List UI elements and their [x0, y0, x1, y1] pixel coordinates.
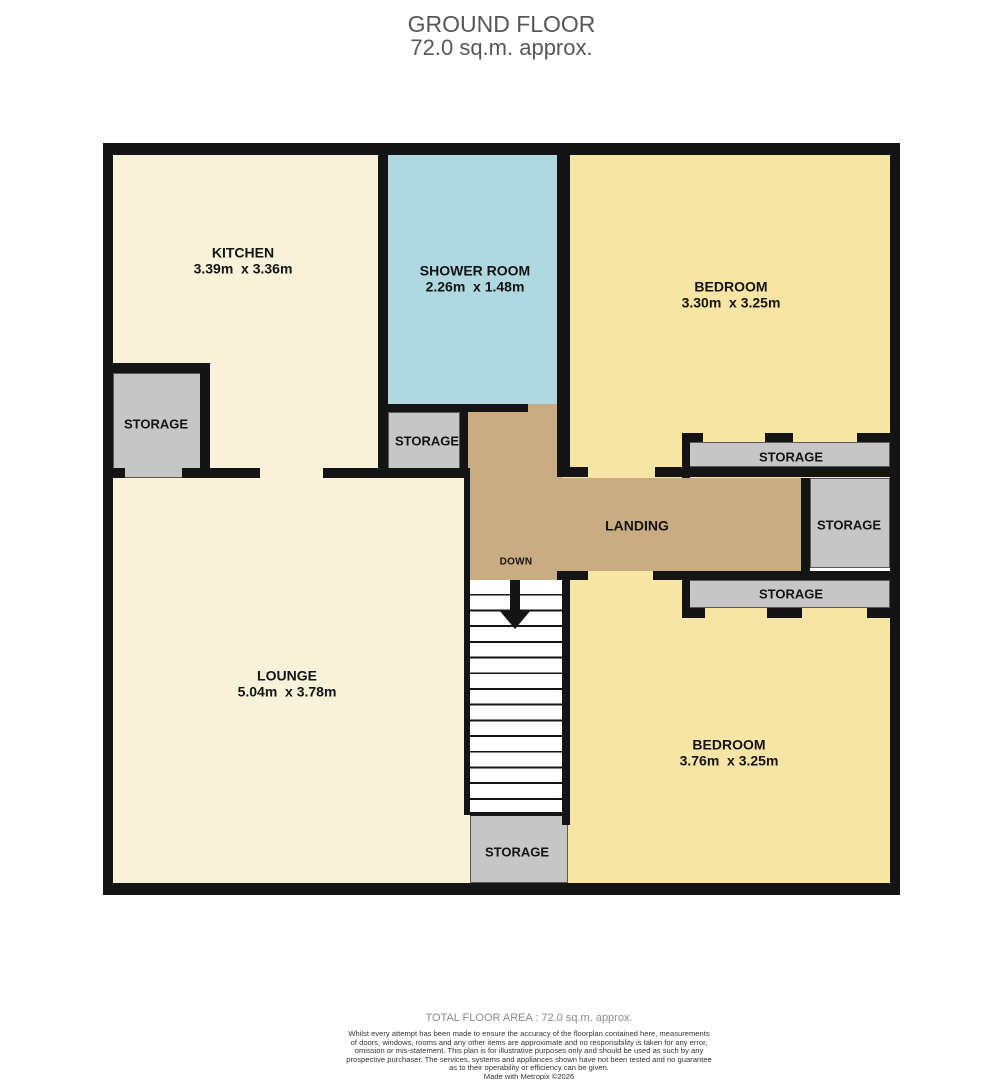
wall: [682, 433, 703, 442]
lounge-dims: 5.04m x 3.78m: [238, 684, 337, 700]
wall: [323, 468, 470, 478]
wall: [103, 143, 113, 895]
down-arrow-head-icon: [499, 610, 531, 629]
lounge-label: LOUNGE 5.04m x 3.78m: [238, 669, 337, 700]
bedroom-top-dims: 3.30m x 3.25m: [682, 295, 781, 311]
wall: [557, 143, 570, 477]
wall: [103, 468, 125, 478]
wall: [182, 468, 260, 478]
kitchen-label: KITCHEN 3.39m x 3.36m: [194, 246, 293, 277]
wall: [200, 363, 210, 478]
wall: [460, 412, 468, 478]
metropix-credit: Made with Metropix ©2026: [28, 1073, 1003, 1080]
kitchen-dims: 3.39m x 3.36m: [194, 261, 293, 277]
bedroom-bottom-dims: 3.76m x 3.25m: [680, 753, 779, 769]
wall: [378, 143, 388, 478]
wall: [557, 571, 588, 580]
wall: [857, 433, 890, 442]
footer: TOTAL FLOOR AREA : 72.0 sq.m. approx. Wh…: [0, 1012, 1003, 1080]
wall: [557, 467, 588, 477]
wall: [767, 608, 802, 618]
storage-bedroom-bottom-label: STORAGE: [759, 587, 823, 602]
wall: [103, 883, 900, 895]
floorplan: KITCHEN 3.39m x 3.36m SHOWER ROOM 2.26m …: [103, 143, 900, 895]
total-floor-area: TOTAL FLOOR AREA : 72.0 sq.m. approx.: [28, 1012, 1003, 1025]
wall: [562, 571, 570, 823]
disclaimer: Whilst every attempt has been made to en…: [28, 1030, 1003, 1073]
down-arrow-icon: [510, 580, 520, 612]
storage-kitchen-label: STORAGE: [124, 417, 188, 432]
wall: [801, 478, 810, 571]
shower-room-name: SHOWER ROOM: [420, 264, 530, 280]
shower-room-label: SHOWER ROOM 2.26m x 1.48m: [420, 264, 530, 295]
storage-under-stairs-label: STORAGE: [485, 845, 549, 860]
page-title: GROUND FLOOR 72.0 sq.m. approx.: [0, 12, 1003, 59]
wall: [655, 467, 890, 477]
shower-room-dims: 2.26m x 1.48m: [420, 279, 530, 295]
wall: [464, 478, 470, 815]
wall: [682, 608, 705, 618]
bedroom-bottom-name: BEDROOM: [680, 738, 779, 754]
stairs-down-label: DOWN: [500, 557, 533, 568]
floorplan-page: GROUND FLOOR 72.0 sq.m. approx.: [0, 0, 1003, 1080]
room-bedroom-bottom: [562, 571, 890, 883]
bedroom-top-label: BEDROOM 3.30m x 3.25m: [682, 280, 781, 311]
wall: [562, 815, 570, 825]
landing-label: LANDING: [605, 518, 669, 534]
room-bedroom-top: [560, 155, 890, 478]
bedroom-bottom-label: BEDROOM 3.76m x 3.25m: [680, 738, 779, 769]
wall: [867, 608, 890, 618]
wall: [765, 433, 793, 442]
kitchen-name: KITCHEN: [194, 246, 293, 262]
wall: [890, 143, 900, 895]
wall: [378, 404, 528, 412]
lounge-name: LOUNGE: [238, 669, 337, 685]
storage-bedroom-top-label: STORAGE: [759, 450, 823, 465]
storage-landing-right-label: STORAGE: [817, 518, 881, 533]
wall: [103, 143, 900, 155]
wall: [103, 363, 210, 373]
wall: [470, 812, 568, 816]
storage-under-shower-label: STORAGE: [395, 434, 459, 449]
floor-title: GROUND FLOOR: [0, 12, 1003, 36]
floor-area-subtitle: 72.0 sq.m. approx.: [0, 36, 1003, 59]
bedroom-top-name: BEDROOM: [682, 280, 781, 296]
